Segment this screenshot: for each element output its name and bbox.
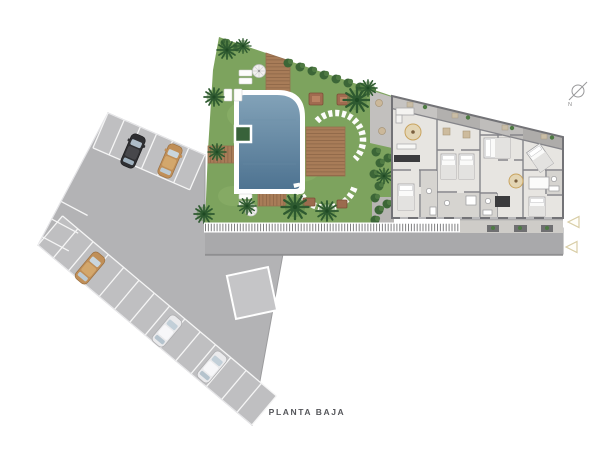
courtyard-table [376, 100, 383, 107]
kitchen-island [397, 144, 416, 149]
dining-table [463, 131, 470, 138]
kitchen-counter [495, 196, 510, 207]
coffee-table [411, 130, 415, 134]
dresser [529, 177, 549, 189]
sofa [396, 115, 402, 123]
compass-north-label: N [568, 102, 572, 108]
garden [194, 37, 392, 223]
page-title: PLANTA BAJA [269, 407, 346, 417]
floor-plan-canvas: N PLANTA BAJA [0, 0, 615, 454]
coffee-table [514, 179, 517, 182]
triangle-marker-icon [568, 217, 579, 228]
triangle-marker-icon [566, 242, 577, 253]
parasol-top [253, 65, 266, 78]
ramp-pad [227, 267, 277, 319]
pool-planter-box [235, 126, 251, 142]
compass-icon: N [568, 82, 587, 108]
dining-table [443, 128, 450, 135]
floor-plan-page: N PLANTA BAJA [0, 0, 615, 454]
sidewalk-planters [487, 225, 553, 232]
courtyard-floor [370, 90, 392, 148]
building [392, 96, 563, 218]
entrance-markers [566, 217, 579, 253]
deck-main [306, 127, 345, 176]
sofa [396, 108, 414, 115]
swimming-pool [234, 90, 305, 194]
courtyard-table [379, 128, 386, 135]
kitchen-counter [394, 155, 420, 162]
